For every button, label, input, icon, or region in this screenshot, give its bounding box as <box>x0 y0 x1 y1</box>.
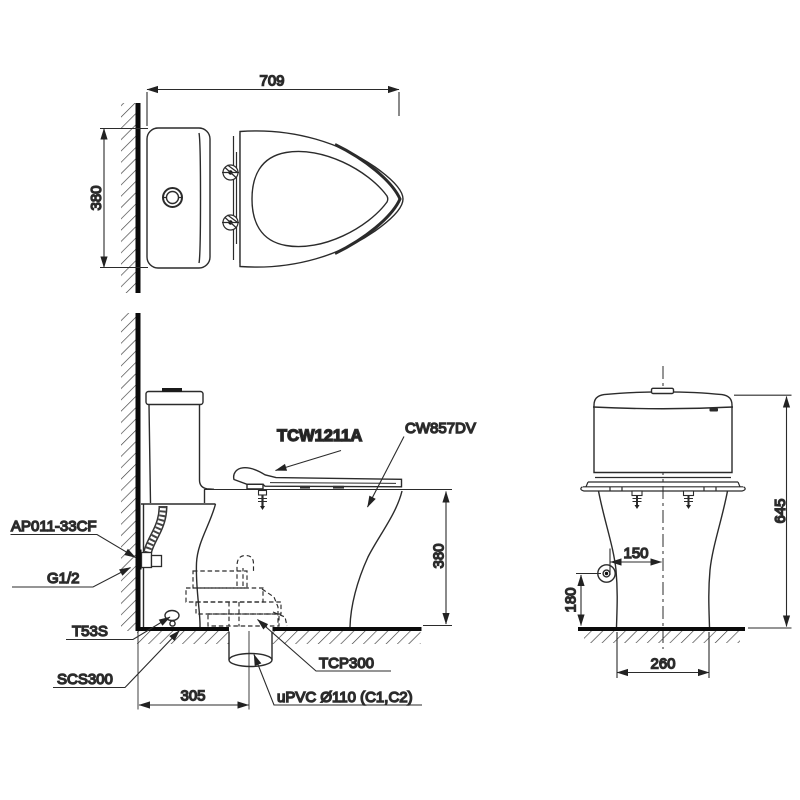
dimension-180 <box>576 574 601 626</box>
leader-bowl-model <box>368 437 405 508</box>
label-bowl-model: CW857DV <box>405 420 476 437</box>
tank-front-outline <box>594 392 732 473</box>
dim-180-label: 180 <box>563 587 580 612</box>
hinge-lines <box>234 133 241 263</box>
wall-line <box>136 103 141 293</box>
hidden-trapway <box>186 556 287 627</box>
dim-709-label: 709 <box>259 73 284 90</box>
floor-hatch <box>584 631 740 643</box>
tank-body-side <box>149 405 214 504</box>
side-view: 380 305 TCW1211A CW857DV AP011-33CF G1/2… <box>11 313 476 710</box>
toilet-installation-drawing: 709 380 <box>0 0 800 800</box>
label-seat-model: TCW1211A <box>277 427 362 445</box>
front-view: 645 150 180 260 <box>563 366 792 678</box>
dim-305-label: 305 <box>180 688 205 705</box>
stop-valve <box>137 550 162 570</box>
seat-tick <box>333 486 344 489</box>
label-pipe: uPVC Ø110 (C1,C2) <box>277 689 413 706</box>
hinge-bolt-top <box>222 165 239 180</box>
label-seal: T53S <box>72 623 108 640</box>
wall-hatch <box>121 103 136 293</box>
dim-380-top-label: 380 <box>88 185 105 210</box>
floor-line <box>273 627 422 631</box>
dim-380-side-label: 380 <box>431 543 448 568</box>
seat-pad <box>247 484 263 489</box>
lid-outline <box>240 131 403 267</box>
pedestal-front-edge <box>196 504 215 627</box>
dim-645-label: 645 <box>772 498 789 523</box>
bowl-front-curve <box>350 491 402 627</box>
technical-drawing-canvas: 709 380 <box>0 0 800 800</box>
seat-bolt-left <box>632 491 642 509</box>
dim-260-label: 260 <box>650 656 675 673</box>
seat-tick <box>300 486 310 489</box>
label-thread: G1/2 <box>47 570 80 587</box>
dim-150-label: 150 <box>623 545 648 562</box>
tank-button-side <box>162 388 182 392</box>
top-view: 709 380 <box>88 73 403 294</box>
floor-hatch <box>137 631 229 644</box>
bowl-left-edge <box>599 491 618 627</box>
label-connector: TCP300 <box>319 655 374 672</box>
brand-mark <box>710 408 719 412</box>
label-flange: SCS300 <box>57 671 113 688</box>
dimension-709 <box>147 90 399 127</box>
wall-line <box>136 313 141 631</box>
seat-bolt-right <box>684 491 694 509</box>
label-supply-hose: AP011-33CF <box>11 518 97 535</box>
hinge-bolt-bottom <box>222 215 239 230</box>
bowl-right-edge <box>709 491 728 627</box>
floor-hatch <box>273 631 421 644</box>
tank-button-front <box>652 388 674 393</box>
wall-hatch <box>121 313 136 631</box>
seat-fixing-bolt <box>258 491 267 511</box>
leader-supply-hose <box>11 535 136 558</box>
tank-lid-side <box>146 392 203 405</box>
supply-hose <box>147 506 163 556</box>
leader-seat-model <box>276 451 342 471</box>
floor-line <box>578 627 745 631</box>
seat-hinge-plate <box>222 133 240 263</box>
